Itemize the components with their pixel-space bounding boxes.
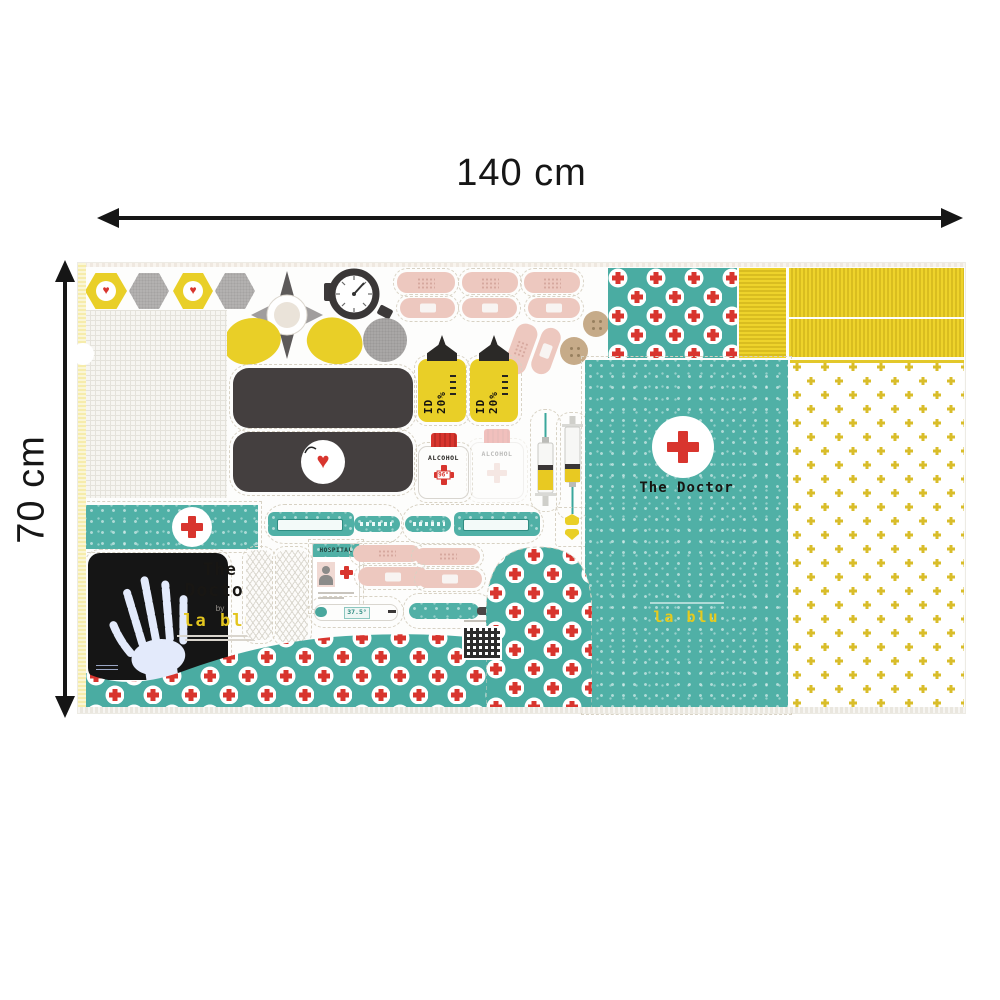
qr-code	[462, 626, 502, 660]
pump-bulb	[363, 318, 407, 362]
red-cross-icon	[667, 431, 699, 463]
bottle-cap	[431, 433, 457, 447]
hexagon-gray-piece	[129, 273, 169, 309]
bottle-label: ID 20%	[422, 369, 448, 414]
hexagon-heart-piece: ♥	[173, 273, 213, 309]
thermometer-reading: 37.5°	[344, 607, 370, 619]
alcohol-bottle-ghost: ALCOHOL	[470, 442, 524, 499]
doctor-badge-label: The Doctor	[585, 480, 788, 496]
red-cross-icon	[487, 463, 507, 483]
stethoscope-squiggle-icon	[303, 442, 319, 458]
plus-print-piece	[790, 360, 964, 711]
syringe	[534, 413, 557, 508]
bandage-piece	[418, 570, 482, 588]
bandage-piece	[400, 298, 455, 318]
button-piece	[560, 337, 588, 365]
bandage-piece	[397, 272, 455, 293]
heart-badge: ♥	[96, 281, 116, 301]
cross-print-square	[608, 268, 737, 358]
yellow-stripe-piece	[739, 268, 786, 358]
bottle-label: ID 20%	[474, 369, 500, 414]
id-dropper-bottle: ID 20%	[470, 359, 518, 422]
heart-icon: ♥	[183, 281, 203, 300]
alcohol-label: ALCOHOL	[419, 454, 468, 462]
gauze-fabric-piece	[85, 310, 227, 498]
alcohol-degree: 96°	[436, 471, 451, 480]
brand-mark: la blu	[585, 608, 788, 626]
id-dropper-bottle: ID 20%	[418, 359, 466, 422]
hexagon-heart-piece: ♥	[85, 273, 127, 309]
bottle-ticks	[450, 373, 456, 395]
bottle-cap	[484, 429, 510, 443]
heart-badge: ♥	[183, 281, 203, 301]
bandage-piece	[462, 298, 517, 318]
red-cross-icon	[340, 566, 353, 579]
wrist-strap	[268, 508, 400, 540]
bottle-ticks	[502, 373, 508, 395]
bandage-piece	[353, 545, 420, 562]
headband-piece	[86, 505, 258, 549]
bandage-piece	[524, 272, 580, 293]
piece-divider	[789, 317, 964, 319]
alcohol-label: ALCOHOL	[471, 450, 523, 458]
selvage-edge	[78, 263, 86, 713]
doctor-bag-piece: ♥	[233, 432, 413, 492]
hexagon-gray-piece	[215, 273, 255, 309]
wrist-strap	[405, 508, 540, 540]
yellow-stripe-piece	[789, 268, 964, 357]
qr-caption-line	[464, 620, 488, 622]
bandage-piece	[415, 548, 480, 565]
pressure-gauge	[328, 268, 380, 320]
width-dimension-label: 140 cm	[78, 152, 965, 195]
doctor-bag-piece	[233, 368, 413, 428]
cross-badge	[652, 416, 714, 478]
product-dimension-diagram: 140 cm 70 cm ♥ ♥	[0, 0, 1000, 1000]
fabric-panel: ♥ ♥	[78, 263, 965, 713]
dropper-cap	[479, 335, 509, 361]
red-cross-icon	[181, 516, 203, 538]
width-dimension-arrow	[95, 198, 965, 238]
bandage-piece	[528, 298, 580, 318]
gauze-roll-piece	[246, 550, 272, 640]
heart-badge: ♥	[301, 440, 345, 484]
credits-line	[650, 602, 724, 604]
syringe	[560, 416, 585, 516]
selvage-edge	[78, 707, 965, 713]
heart-icon: ♥	[96, 281, 116, 300]
thermometer: 37.5°	[312, 600, 400, 624]
dropper-cap	[427, 335, 457, 361]
id-card-title: HOSPITAL	[313, 544, 359, 557]
button-piece	[583, 311, 609, 337]
id-card-photo	[317, 562, 335, 587]
alcohol-bottle: ALCOHOL 96°	[418, 446, 469, 499]
cross-badge	[172, 507, 212, 547]
doctor-panel-piece: The Doctor la blu	[585, 360, 788, 711]
notch-circle	[72, 343, 94, 365]
bandage-piece	[462, 272, 518, 293]
